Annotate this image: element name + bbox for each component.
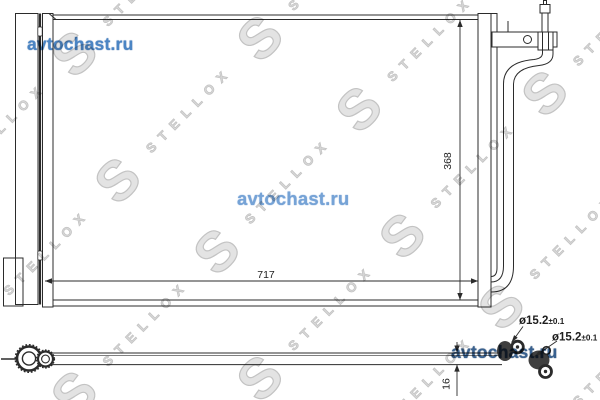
drier-tab-bottom	[38, 251, 42, 260]
valve-cap	[540, 5, 550, 14]
condenser-drawing-page: 368 717	[0, 0, 600, 400]
bracket-hole	[524, 36, 532, 44]
right-tank	[478, 14, 491, 308]
arrowhead-down	[454, 346, 459, 353]
arrowhead-left	[45, 278, 52, 283]
port-fitting-1	[497, 341, 523, 361]
port-diameter-label-2: ø15.2±0.1	[552, 332, 598, 344]
drier-tab-top	[38, 27, 42, 36]
valve-tip	[544, 1, 547, 5]
front-view: 368 717	[4, 1, 558, 308]
condenser-core	[49, 14, 478, 307]
inlet-pipe-inner	[491, 50, 543, 282]
left-tank	[43, 14, 54, 308]
dimension-thickness-label: 16	[441, 378, 453, 390]
tank-pipe-line	[491, 14, 497, 277]
tube-body	[52, 353, 502, 365]
valve-stem	[542, 13, 548, 32]
dimension-width-label: 717	[257, 269, 275, 281]
service-valve	[538, 1, 553, 51]
arrowhead-up	[454, 365, 459, 372]
condenser-technical-drawing: 368 717	[0, 0, 600, 400]
valve-fitting-block	[538, 32, 553, 50]
refrigerant-pipes	[491, 14, 553, 293]
dimension-thickness: 16	[441, 342, 460, 396]
side-view: 16 ø15.2±0.1 ø15.2±0.1	[1, 315, 598, 396]
receiver-drier	[16, 14, 43, 305]
inlet-pipe-outer	[491, 50, 553, 292]
port-diameter-label-1: ø15.2±0.1	[519, 315, 565, 327]
dimension-height-label: 368	[442, 152, 454, 170]
